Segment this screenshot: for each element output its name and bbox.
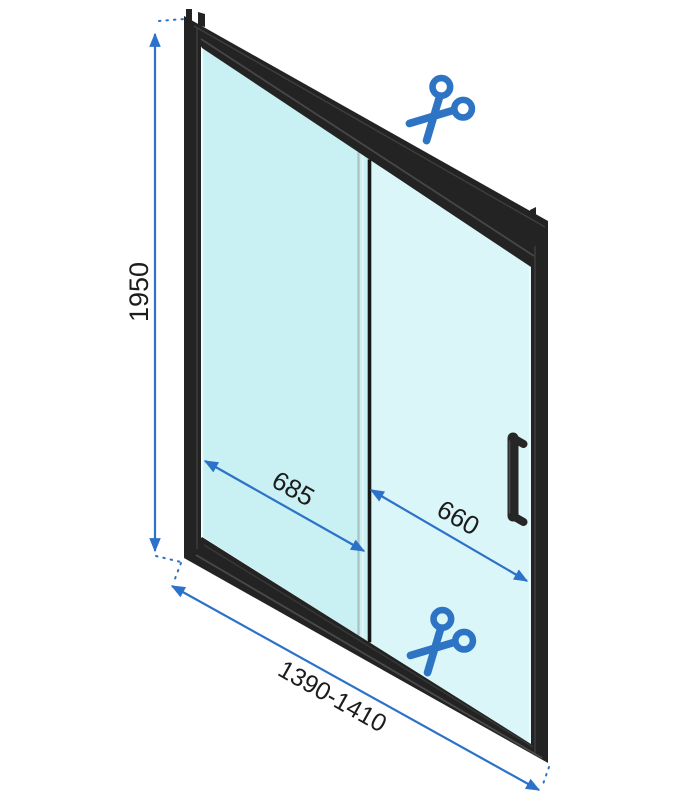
shower-door-technical-diagram: 1950 685 660 1390-1410	[0, 0, 694, 800]
shower-door	[184, 9, 548, 763]
frame-left-profile	[184, 16, 201, 558]
wall-mount-tab-left-2	[198, 12, 205, 27]
dimension-total-width-label: 1390-1410	[273, 655, 391, 738]
dimension-height-label: 1950	[124, 262, 154, 322]
scissors-icon-top	[401, 74, 476, 149]
dimension-height: 1950	[124, 34, 155, 551]
frame-right-profile	[531, 228, 548, 763]
wall-mount-tab-left-1	[186, 9, 192, 23]
diagram-svg: 1950 685 660 1390-1410	[0, 0, 694, 800]
